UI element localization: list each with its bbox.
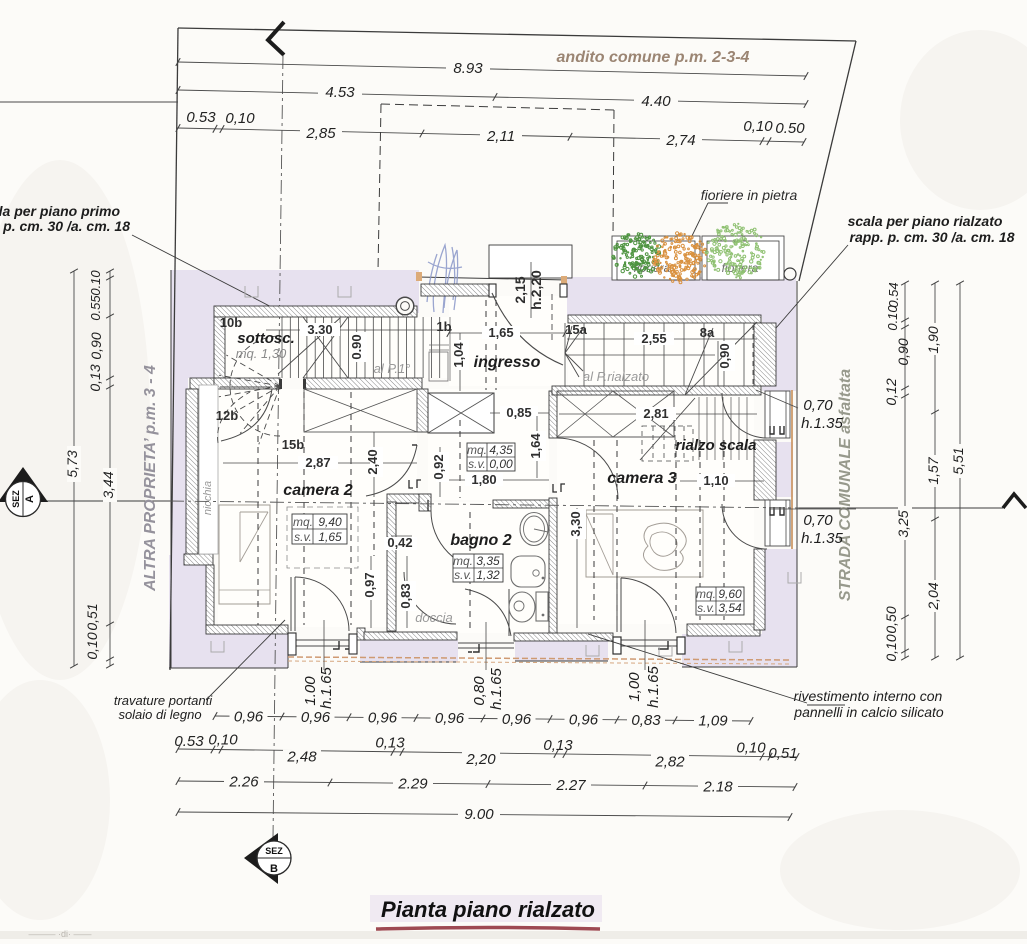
svg-text:al P.1°: al P.1°	[374, 361, 411, 376]
svg-text:2.26: 2.26	[228, 774, 259, 791]
svg-text:1,10: 1,10	[703, 473, 728, 488]
svg-text:fioriere in pietra: fioriere in pietra	[701, 187, 798, 203]
svg-text:0,10: 0,10	[883, 634, 899, 661]
svg-text:s.v.: s.v.	[294, 530, 312, 544]
svg-text:3,44: 3,44	[100, 471, 116, 498]
svg-text:0,90: 0,90	[895, 338, 911, 365]
svg-text:1,04: 1,04	[451, 342, 466, 368]
svg-text:STRADA COMUNALE asfaltata: STRADA COMUNALE asfaltata	[837, 369, 854, 601]
svg-text:2,48: 2,48	[286, 749, 317, 766]
svg-text:h.1.35: h.1.35	[801, 530, 843, 547]
svg-text:0,96: 0,96	[569, 711, 599, 728]
svg-text:SEZ: SEZ	[265, 846, 283, 856]
svg-text:0,96: 0,96	[435, 710, 465, 727]
svg-text:0,13: 0,13	[375, 735, 405, 752]
svg-text:mq. 1,30: mq. 1,30	[236, 346, 287, 361]
svg-text:0,51: 0,51	[768, 745, 797, 762]
svg-text:2.27: 2.27	[555, 777, 586, 794]
svg-text:9,60: 9,60	[718, 587, 742, 601]
svg-text:0,90: 0,90	[717, 343, 732, 368]
svg-text:mq.: mq.	[453, 554, 473, 568]
svg-text:0.53: 0.53	[174, 733, 204, 750]
svg-text:2,15: 2,15	[512, 276, 528, 303]
svg-text:A: A	[24, 495, 36, 503]
svg-text:3,35: 3,35	[476, 554, 500, 568]
svg-text:1,65: 1,65	[318, 530, 342, 544]
svg-text:1,80: 1,80	[471, 472, 496, 487]
svg-text:mq.: mq.	[696, 587, 716, 601]
svg-text:0.10: 0.10	[88, 270, 103, 296]
svg-text:s.v.: s.v.	[454, 568, 472, 582]
svg-text:h.1.35: h.1.35	[801, 415, 843, 432]
svg-text:travature portanti: travature portanti	[114, 693, 213, 708]
svg-text:2,87: 2,87	[305, 455, 330, 470]
svg-text:B: B	[270, 863, 278, 875]
svg-text:sottosc.: sottosc.	[237, 330, 295, 347]
svg-text:2.29: 2.29	[397, 775, 428, 792]
svg-text:4.53: 4.53	[325, 84, 355, 101]
svg-text:0.53: 0.53	[186, 109, 216, 126]
svg-text:2,04: 2,04	[925, 582, 941, 610]
svg-text:0,10: 0,10	[208, 732, 238, 749]
svg-text:nicchia: nicchia	[202, 481, 214, 515]
svg-text:al P.rialzato: al P.rialzato	[583, 369, 649, 384]
svg-text:0,97: 0,97	[362, 572, 377, 597]
svg-text:mq.: mq.	[293, 515, 313, 529]
svg-text:rapp. p. cm. 30 /a. cm. 18: rapp. p. cm. 30 /a. cm. 18	[850, 229, 1015, 245]
svg-text:0.54: 0.54	[886, 282, 901, 307]
svg-text:10b: 10b	[220, 315, 242, 330]
svg-text:0,10: 0,10	[225, 110, 255, 127]
svg-text:pannelli in calcio silicato: pannelli in calcio silicato	[793, 704, 944, 720]
svg-text:h.2,20: h.2,20	[528, 270, 544, 310]
svg-text:ALTRA PROPRIETA’ p.m. 3 - 4: ALTRA PROPRIETA’ p.m. 3 - 4	[142, 365, 159, 592]
svg-text:15b: 15b	[282, 437, 304, 452]
svg-text:3,54: 3,54	[718, 601, 742, 615]
svg-text:andito comune p.m. 2-3-4: andito comune p.m. 2-3-4	[557, 49, 750, 66]
svg-text:0.50: 0.50	[775, 120, 805, 137]
svg-text:0.55: 0.55	[88, 295, 103, 321]
svg-text:2,85: 2,85	[305, 125, 336, 142]
svg-text:0,70: 0,70	[803, 397, 833, 414]
svg-text:s.v.: s.v.	[697, 601, 715, 615]
svg-text:rivestimento interno con: rivestimento interno con	[794, 688, 943, 704]
svg-text:2,82: 2,82	[654, 753, 685, 770]
svg-text:0,10: 0,10	[736, 739, 766, 756]
svg-text:0,70: 0,70	[803, 512, 833, 529]
svg-text:h.1.65: h.1.65	[318, 666, 335, 708]
svg-text:rapp. p. cm. 30 /a. cm. 18: rapp. p. cm. 30 /a. cm. 18	[0, 218, 130, 234]
svg-text:0,96: 0,96	[301, 709, 331, 726]
svg-text:0,10: 0,10	[84, 632, 100, 659]
svg-text:h.1.65: h.1.65	[645, 665, 662, 707]
svg-text:——— ·di· ——: ——— ·di· ——	[29, 929, 92, 939]
svg-text:0,80: 0,80	[471, 676, 488, 706]
svg-text:9,40: 9,40	[318, 515, 342, 529]
svg-text:0,92: 0,92	[431, 454, 446, 479]
svg-text:12b: 12b	[216, 408, 238, 423]
svg-text:doccia: doccia	[415, 610, 453, 625]
svg-text:0.10: 0.10	[885, 305, 900, 331]
svg-text:5,51: 5,51	[950, 447, 966, 474]
svg-text:0,51: 0,51	[84, 603, 100, 630]
svg-text:2,81: 2,81	[643, 406, 668, 421]
svg-text:1,32: 1,32	[476, 568, 500, 582]
svg-text:1,90: 1,90	[925, 326, 941, 353]
svg-text:s.v.: s.v.	[468, 457, 486, 471]
svg-text:4,35: 4,35	[489, 443, 513, 457]
svg-text:0,83: 0,83	[398, 583, 413, 608]
svg-text:0,83: 0,83	[631, 712, 661, 729]
svg-text:8a: 8a	[700, 325, 715, 340]
svg-text:scala per piano rialzato: scala per piano rialzato	[848, 213, 1003, 229]
svg-text:2,55: 2,55	[641, 331, 666, 346]
svg-text:9.00: 9.00	[464, 806, 494, 823]
svg-text:0,13: 0,13	[543, 737, 573, 754]
svg-text:0,85: 0,85	[506, 405, 531, 420]
svg-text:scala per piano primo: scala per piano primo	[0, 203, 120, 219]
svg-text:0,13: 0,13	[87, 364, 103, 391]
svg-text:ingresso: ingresso	[474, 354, 541, 371]
svg-text:2.18: 2.18	[702, 778, 733, 795]
svg-text:1,65: 1,65	[488, 325, 513, 340]
svg-text:8.93: 8.93	[453, 60, 483, 77]
svg-text:rialzo scala: rialzo scala	[676, 437, 757, 454]
svg-text:0,12: 0,12	[883, 378, 899, 405]
svg-text:0,96: 0,96	[368, 710, 398, 727]
svg-text:0,90: 0,90	[88, 332, 104, 359]
svg-text:1,64: 1,64	[528, 433, 543, 459]
svg-text:Pianta piano rialzato: Pianta piano rialzato	[381, 897, 595, 922]
svg-text:camera 2: camera 2	[283, 482, 352, 499]
svg-text:1,09: 1,09	[698, 713, 728, 730]
svg-text:3,25: 3,25	[895, 510, 911, 537]
svg-text:0,42: 0,42	[387, 535, 412, 550]
svg-text:SEZ: SEZ	[11, 490, 21, 508]
svg-text:1,00: 1,00	[626, 672, 643, 702]
svg-text:2,20: 2,20	[465, 751, 496, 768]
svg-text:3.30: 3.30	[307, 322, 332, 337]
svg-text:0.90: 0.90	[349, 334, 364, 359]
svg-text:5,73: 5,73	[64, 450, 80, 477]
svg-text:2,11: 2,11	[486, 128, 515, 145]
svg-text:camera 3: camera 3	[607, 470, 676, 487]
svg-text:h.1.65: h.1.65	[488, 667, 505, 709]
svg-text:0,50: 0,50	[883, 606, 899, 633]
svg-text:0,10: 0,10	[743, 118, 773, 135]
svg-text:mq.: mq.	[467, 443, 487, 457]
svg-text:4.40: 4.40	[641, 93, 671, 110]
svg-text:15a: 15a	[565, 322, 587, 337]
svg-text:1.00: 1.00	[302, 676, 319, 706]
svg-text:3,30: 3,30	[568, 511, 583, 536]
svg-text:0,00: 0,00	[489, 457, 513, 471]
svg-text:0,96: 0,96	[234, 708, 264, 725]
svg-text:2,40: 2,40	[365, 449, 380, 474]
svg-text:2,74: 2,74	[665, 132, 695, 149]
svg-text:solaio di legno: solaio di legno	[118, 707, 201, 722]
svg-text:bagno 2: bagno 2	[450, 532, 511, 549]
svg-text:1,57: 1,57	[925, 456, 941, 484]
svg-text:0,96: 0,96	[502, 711, 532, 728]
